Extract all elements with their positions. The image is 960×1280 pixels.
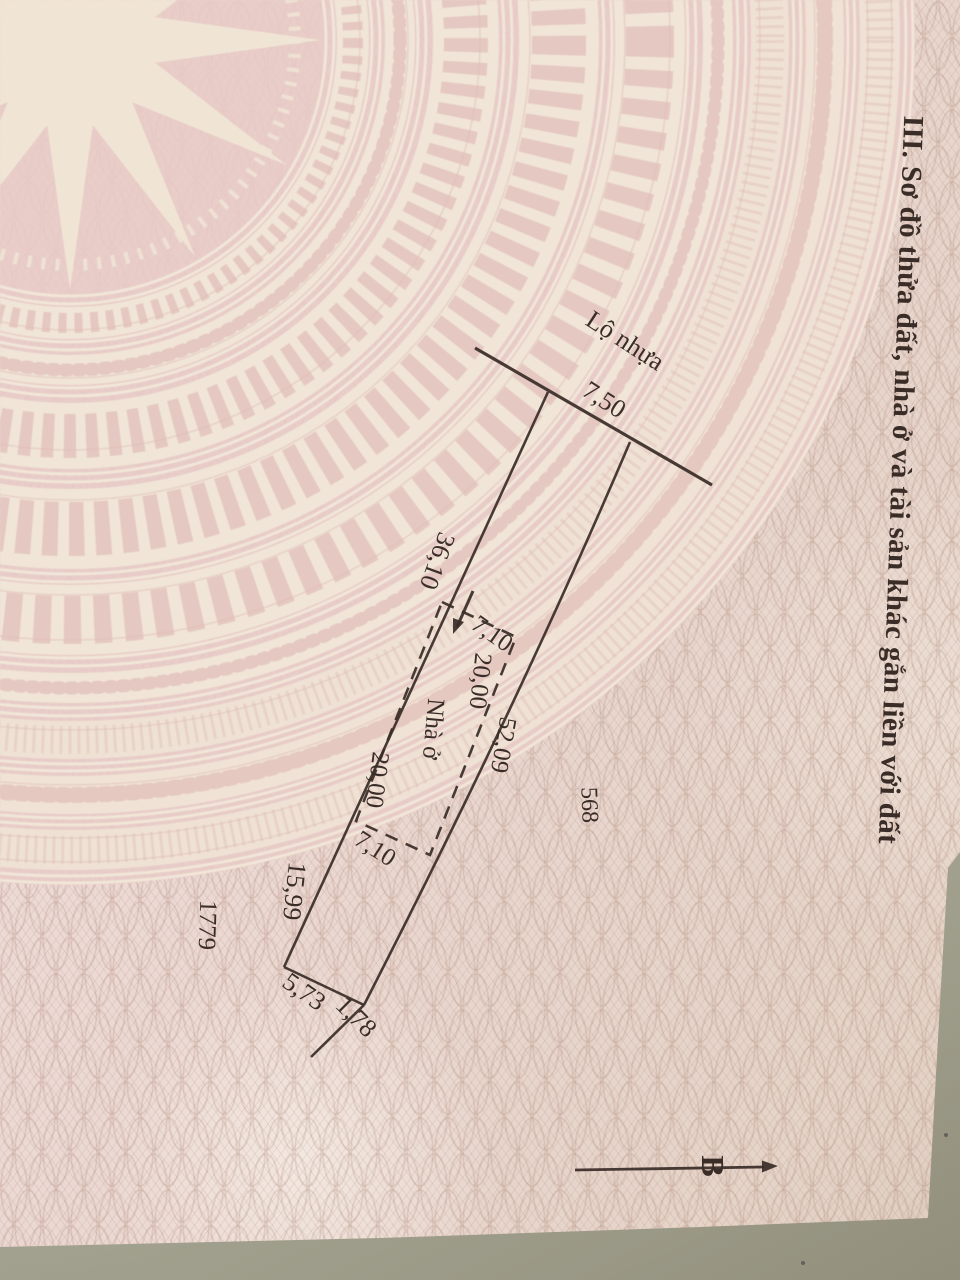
house-label: Nhà ở [418, 697, 448, 760]
north-arrow-line [575, 1167, 764, 1170]
adjacent-parcel-number-left: 1779 [194, 900, 221, 951]
land-certificate-page: III. Sơ đồ thửa đất, nhà ở và tài sản kh… [0, 0, 960, 1280]
dust-speck [944, 1133, 948, 1137]
dust-speck [801, 1261, 805, 1265]
north-arrow-head [762, 1161, 778, 1173]
adjacent-parcel-number-right: 568 [576, 787, 601, 824]
dim-left-side-lower: 15,99 [278, 861, 310, 922]
road-line [475, 348, 712, 485]
north-direction-label: B [697, 1155, 729, 1176]
parcel-boundary-left [284, 392, 548, 967]
dim-house-length-right: 20,00 [465, 652, 496, 711]
entry-arrow-head [453, 618, 464, 634]
photo-scene: III. Sơ đồ thửa đất, nhà ở và tài sản kh… [0, 0, 960, 1280]
